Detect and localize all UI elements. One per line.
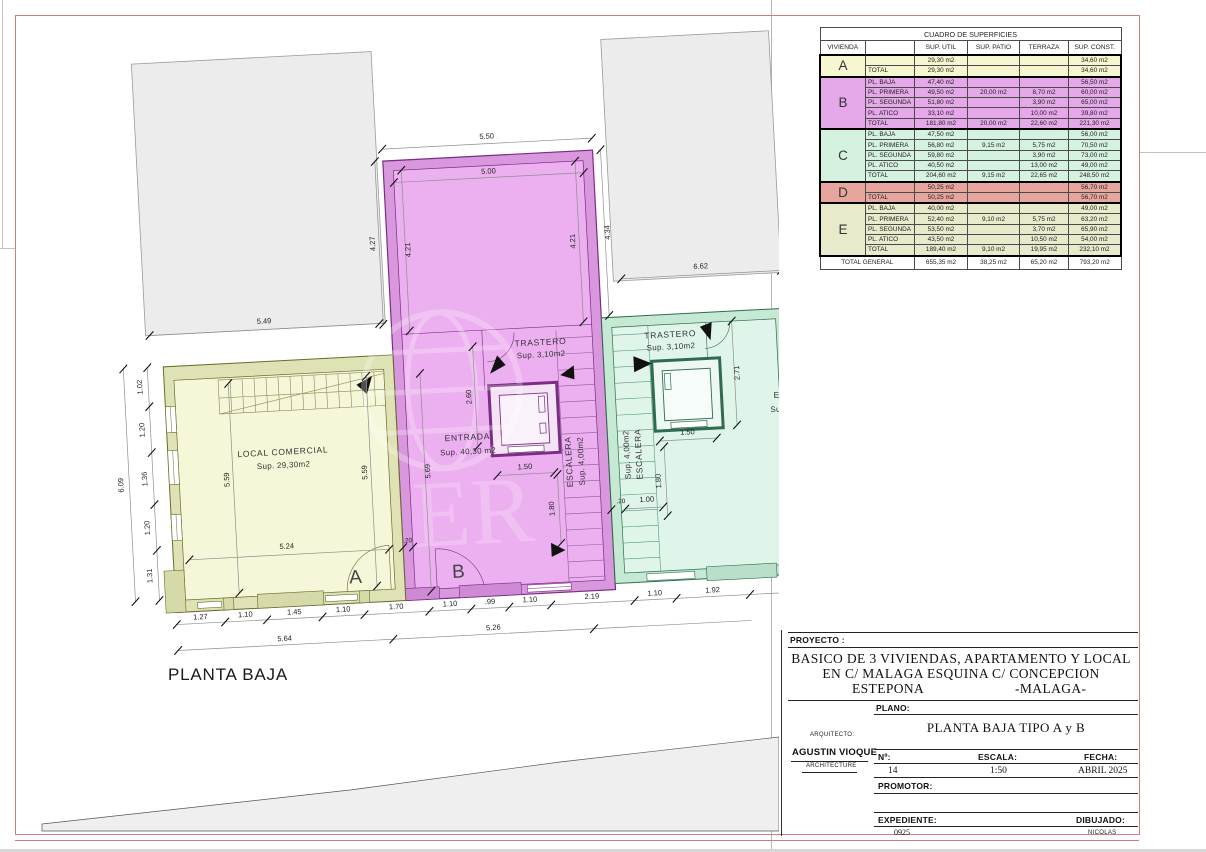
vivienda-letter: E — [820, 203, 866, 255]
table-cell — [968, 203, 1020, 214]
dim-label: 1.20 — [142, 520, 152, 535]
dim-label: 1.10 — [522, 595, 537, 605]
table-cell — [968, 98, 1020, 108]
table-cell: 43,50 m2 — [915, 235, 968, 245]
table-cell — [968, 108, 1020, 118]
table-cell: PL. SEGUNDA — [866, 150, 915, 160]
column-header: TERRAZA — [1020, 41, 1069, 56]
arquitecto-sub: ARCHITECTURE — [806, 763, 857, 769]
table-cell: 51,80 m2 — [915, 98, 968, 108]
dim-label: 2.71 — [732, 365, 742, 380]
surface-table: CUADRO DE SUPERFICIESVIVIENDASUP. UTILSU… — [819, 27, 1122, 270]
column-header: SUP. CONST. — [1069, 41, 1122, 56]
table-cell: TOTAL — [866, 118, 915, 129]
table-cell: 56,70 m2 — [1069, 192, 1122, 203]
column-header: SUP. PATIO — [968, 41, 1020, 56]
dim-label: 1.27 — [193, 612, 208, 622]
table-cell: 56,50 m2 — [1069, 77, 1122, 88]
drawing-sheet: { "page": { "plan_label": "PLANTA BAJA" … — [0, 0, 1206, 852]
table-cell: 40,00 m2 — [915, 203, 968, 214]
table-cell: 49,00 m2 — [1069, 160, 1122, 170]
table-cell: 10,50 m2 — [1020, 235, 1069, 245]
table-cell: 63,20 m2 — [1069, 214, 1122, 224]
title-block: PROYECTO : BASICO DE 3 VIVIENDAS, APARTA… — [781, 630, 1140, 836]
rule — [802, 772, 857, 773]
table-cell: TOTAL — [866, 171, 915, 182]
promotor-label: PROMOTOR: — [878, 781, 933, 791]
project-title-province: -MALAGA- — [1015, 681, 1086, 697]
rule — [791, 761, 868, 762]
table-cell: PL. BAJA — [866, 129, 915, 140]
dim-label: 2.60 — [464, 389, 474, 404]
table-cell: TOTAL — [866, 192, 915, 203]
table-cell — [1020, 77, 1069, 88]
rule — [874, 793, 1138, 794]
table-cell: 40,50 m2 — [915, 160, 968, 170]
table-cell: 50,25 m2 — [915, 192, 968, 203]
table-cell: TOTAL — [866, 66, 915, 77]
dim-label: 1.10 — [647, 588, 662, 598]
dim-label: 2.19 — [584, 591, 599, 601]
table-cell: 59,80 m2 — [915, 150, 968, 160]
dim-label: 5.26 — [486, 623, 501, 633]
dim-label: 4.21 — [568, 234, 578, 249]
project-title-city: ESTEPONA — [852, 681, 924, 697]
table-cell: 47,40 m2 — [915, 77, 968, 88]
table-cell: 8,70 m2 — [1020, 87, 1069, 97]
table-cell — [968, 66, 1020, 77]
table-cell: 9,10 m2 — [968, 245, 1020, 256]
table-cell: TOTAL — [866, 245, 915, 256]
dim-label: 5.24 — [279, 541, 294, 551]
vivienda-letter: C — [820, 129, 866, 181]
dim-label: 1.92 — [705, 585, 720, 595]
table-cell — [866, 182, 915, 193]
arquitecto-label: ARQUITECTO: — [810, 732, 854, 738]
dibujado-value: NICOLAS — [1088, 830, 1116, 836]
table-cell: PL. ATICO — [866, 108, 915, 118]
expediente-value: 0925 — [894, 828, 910, 837]
table-cell — [1020, 55, 1069, 66]
table-cell: 56,80 m2 — [915, 140, 968, 150]
table-cell — [968, 77, 1020, 88]
dim-label: 5.59 — [360, 465, 370, 480]
dim-label: 1.70 — [389, 602, 404, 612]
total-general-label: TOTAL GENERAL — [820, 256, 915, 270]
table-cell: 65,00 m2 — [1069, 98, 1122, 108]
table-cell — [968, 129, 1020, 140]
table-cell: 49,50 m2 — [915, 87, 968, 97]
table-cell: 9,15 m2 — [968, 140, 1020, 150]
dim-label: 5.00 — [481, 166, 496, 176]
table-cell: 50,25 m2 — [915, 182, 968, 193]
table-cell: 29,30 m2 — [915, 55, 968, 66]
table-cell — [968, 235, 1020, 245]
table-cell: 9,15 m2 — [968, 171, 1020, 182]
rule — [874, 826, 1138, 827]
table-cell: 248,50 m2 — [1069, 171, 1122, 182]
table-cell: 181,80 m2 — [915, 118, 968, 129]
table-cell: 189,40 m2 — [915, 245, 968, 256]
table-cell: 73,00 m2 — [1069, 150, 1122, 160]
vivienda-letter: A — [820, 55, 866, 77]
table-cell: 3,90 m2 — [1020, 150, 1069, 160]
rule — [788, 700, 1138, 701]
table-cell: 5,75 m2 — [1020, 214, 1069, 224]
table-cell: 9,10 m2 — [968, 214, 1020, 224]
neighbor-building-right — [601, 31, 781, 281]
table-cell: 33,10 m2 — [915, 108, 968, 118]
rule — [874, 714, 1138, 715]
dim-label: 1.31 — [145, 568, 155, 583]
fecha-value: ABRIL 2025 — [1078, 766, 1128, 776]
dim-label: 6.62 — [693, 261, 708, 271]
vivienda-group-A: A29,30 m234,60 m2TOTAL29,30 m234,60 m2 — [820, 55, 1121, 77]
dim-label: .20 — [403, 537, 413, 544]
table-cell: 20,00 m2 — [968, 118, 1020, 129]
table-cell — [1020, 66, 1069, 77]
table-cell: 49,00 m2 — [1069, 203, 1122, 214]
column-header — [866, 41, 915, 56]
escala-label: ESCALA: — [978, 752, 1017, 762]
table-title: CUADRO DE SUPERFICIES — [820, 28, 1121, 41]
dim-label: 5.50 — [479, 131, 494, 141]
vivienda-group-C: CPL. BAJA47,50 m256,00 m2PL. PRIMERA56,8… — [820, 129, 1121, 181]
table-cell: PL. ATICO — [866, 160, 915, 170]
dim-label: 6.09 — [116, 478, 126, 493]
dim-label: 5.64 — [277, 634, 292, 644]
dim-label: 1.10 — [336, 604, 351, 614]
rule — [874, 749, 1138, 750]
dim-label: 5.49 — [256, 316, 271, 326]
neighbor-building-left — [131, 52, 385, 336]
dim-label: 1.02 — [135, 380, 145, 395]
table-cell: 54,00 m2 — [1069, 235, 1122, 245]
rule — [874, 763, 1138, 764]
table-cell — [866, 55, 915, 66]
plano-label: PLANO: — [876, 703, 910, 713]
dibujado-label: DIBUJADO: — [1076, 815, 1125, 825]
vivienda-group-B: BPL. BAJA47,40 m256,50 m2PL. PRIMERA49,5… — [820, 77, 1121, 129]
table-cell: 13,00 m2 — [1020, 160, 1069, 170]
dim-label: 1.50 — [680, 427, 695, 437]
table-cell: PL. SEGUNDA — [866, 224, 915, 234]
table-cell: 3,70 m2 — [1020, 224, 1069, 234]
table-cell: 39,80 m2 — [1069, 108, 1122, 118]
table-cell: PL. PRIMERA — [866, 140, 915, 150]
escala-value: 1:50 — [990, 766, 1007, 776]
street-slope — [42, 737, 779, 831]
table-cell — [1020, 129, 1069, 140]
unit-letter-a: A — [349, 567, 363, 589]
table-cell: 56,00 m2 — [1069, 129, 1122, 140]
plan-caption: PLANTA BAJA — [168, 665, 288, 685]
table-cell — [968, 55, 1020, 66]
table-cell: 70,50 m2 — [1069, 140, 1122, 150]
dim-label: 1.10 — [238, 610, 253, 620]
table-cell — [968, 192, 1020, 203]
table-cell: PL. ATICO — [866, 235, 915, 245]
table-cell: 47,50 m2 — [915, 129, 968, 140]
table-cell — [968, 224, 1020, 234]
rule — [874, 777, 1138, 778]
room-area-partial: Su — [770, 405, 781, 415]
table-cell: PL. PRIMERA — [866, 214, 915, 224]
column-header: SUP. UTIL — [915, 41, 968, 56]
rule — [788, 647, 1138, 648]
project-title-line2: EN C/ MALAGA ESQUINA C/ CONCEPCION — [782, 666, 1140, 682]
fecha-label: FECHA: — [1084, 752, 1117, 762]
table-cell: 5,75 m2 — [1020, 140, 1069, 150]
table-cell: 34,60 m2 — [1069, 66, 1122, 77]
dim-label: 1.50 — [517, 462, 532, 472]
table-cell: 204,60 m2 — [915, 171, 968, 182]
dim-label: 1.80 — [547, 501, 557, 516]
dim-label: 4.27 — [368, 236, 378, 251]
table-cell: PL. PRIMERA — [866, 87, 915, 97]
table-cell: 52,40 m2 — [915, 214, 968, 224]
expediente-label: EXPEDIENTE: — [878, 815, 937, 825]
total-general-value: 38,25 m2 — [968, 256, 1020, 270]
table-cell — [968, 160, 1020, 170]
unit-letter-b: B — [452, 561, 466, 583]
dim-label: 1.00 — [639, 494, 654, 504]
table-cell — [1020, 192, 1069, 203]
project-title-line1: BASICO DE 3 VIVIENDAS, APARTAMENTO Y LOC… — [782, 651, 1140, 667]
dim-label: 5.59 — [222, 472, 232, 487]
table-cell: PL. BAJA — [866, 77, 915, 88]
table-cell: 65,90 m2 — [1069, 224, 1122, 234]
dim-label: 5.69 — [423, 464, 433, 479]
dim-label: 1.80 — [654, 474, 664, 489]
total-general-value: 793,20 m2 — [1069, 256, 1122, 270]
numero-value: 14 — [888, 766, 898, 776]
proyecto-label: PROYECTO : — [790, 635, 845, 645]
table-cell: 221,30 m2 — [1069, 118, 1122, 129]
table-cell: 53,50 m2 — [915, 224, 968, 234]
dim-label: 4.34 — [602, 225, 612, 240]
dim-label: 1.45 — [287, 607, 302, 617]
table-cell: 10,00 m2 — [1020, 108, 1069, 118]
table-cell — [968, 182, 1020, 193]
table-cell — [1020, 182, 1069, 193]
rule — [874, 812, 1138, 813]
table-cell — [968, 150, 1020, 160]
table-cell: 56,70 m2 — [1069, 182, 1122, 193]
table-cell: 29,30 m2 — [915, 66, 968, 77]
arquitecto-name: AGUSTIN VIOQUE — [792, 747, 877, 758]
table-cell: 34,60 m2 — [1069, 55, 1122, 66]
vivienda-letter: D — [820, 182, 866, 204]
dim-label: 1.10 — [443, 599, 458, 609]
plano-value: PLANTA BAJA TIPO A y B — [874, 720, 1138, 736]
vivienda-letter: B — [820, 77, 866, 129]
dim-label: 4.21 — [403, 242, 413, 257]
table-cell: PL. SEGUNDA — [866, 98, 915, 108]
vivienda-group-D: D50,25 m256,70 m2TOTAL50,25 m256,70 m2 — [820, 182, 1121, 204]
total-general-value: 655,35 m2 — [915, 256, 968, 270]
total-general-value: 65,20 m2 — [1020, 256, 1069, 270]
table-cell: 20,00 m2 — [968, 87, 1020, 97]
rule — [788, 632, 1138, 633]
table-cell: 22,65 m2 — [1020, 171, 1069, 182]
column-header: VIVIENDA — [820, 41, 866, 56]
dim-label: .99 — [485, 597, 496, 607]
table-cell — [1020, 203, 1069, 214]
elevator-c — [652, 358, 724, 431]
table-cell: PL. BAJA — [866, 203, 915, 214]
room-name-partial: E — [773, 390, 780, 400]
table-cell: 22,60 m2 — [1020, 118, 1069, 129]
vivienda-group-E: EPL. BAJA40,00 m249,00 m2PL. PRIMERA52,4… — [820, 203, 1121, 255]
dim-label: .20 — [616, 498, 626, 505]
table-cell: 232,10 m2 — [1069, 245, 1122, 256]
dim-label: 1.36 — [140, 471, 150, 486]
table-cell: 60,00 m2 — [1069, 87, 1122, 97]
table-cell: 3,90 m2 — [1020, 98, 1069, 108]
numero-label: Nº: — [878, 752, 891, 762]
table-cell: 19,95 m2 — [1020, 245, 1069, 256]
dim-label: 1.20 — [137, 423, 147, 438]
